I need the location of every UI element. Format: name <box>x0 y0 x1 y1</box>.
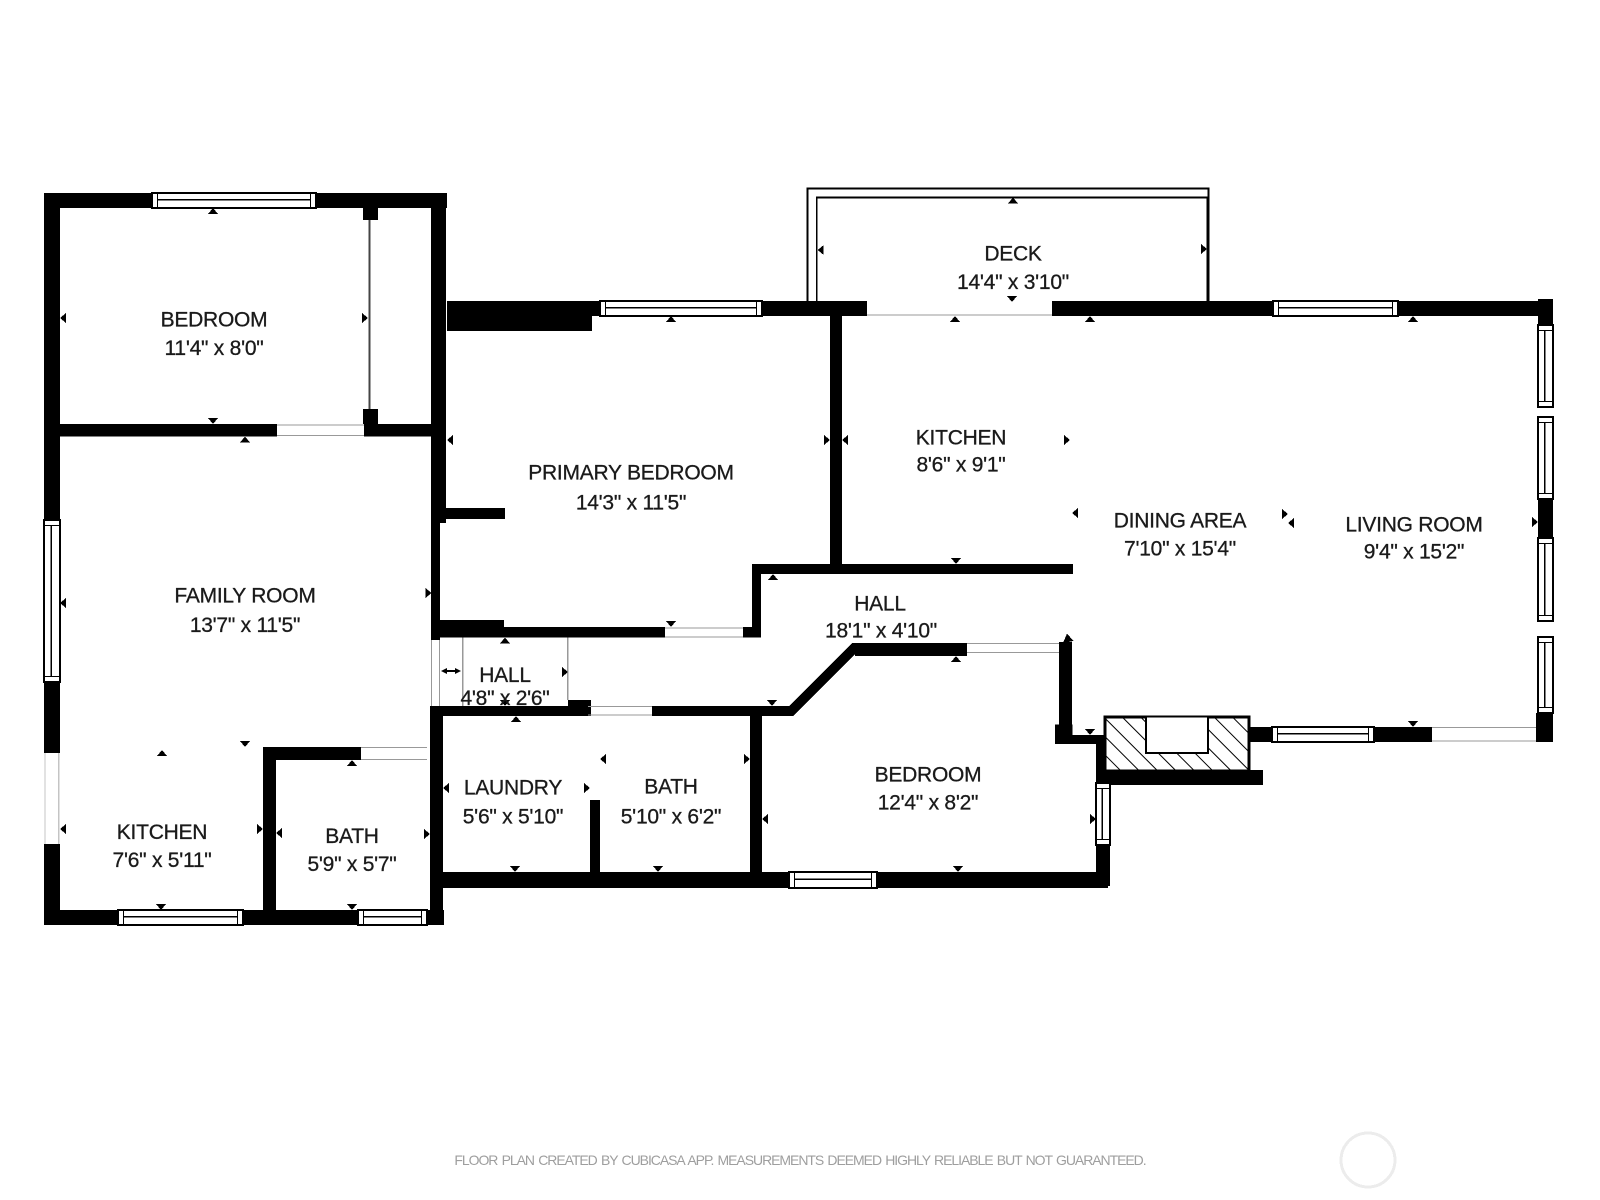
svg-text:FAMILY ROOM: FAMILY ROOM <box>174 585 315 608</box>
svg-text:4'8" x 2'6": 4'8" x 2'6" <box>460 687 549 710</box>
svg-text:KITCHEN: KITCHEN <box>117 821 207 844</box>
svg-text:5'9" x 5'7": 5'9" x 5'7" <box>307 853 396 876</box>
svg-text:14'4" x 3'10": 14'4" x 3'10" <box>957 271 1069 294</box>
svg-text:DINING AREA: DINING AREA <box>1114 510 1247 533</box>
svg-text:HALL: HALL <box>479 664 531 687</box>
svg-text:DECK: DECK <box>984 243 1042 266</box>
svg-text:HALL: HALL <box>854 593 906 616</box>
svg-text:12'4" x 8'2": 12'4" x 8'2" <box>878 792 979 815</box>
svg-text:FLOOR PLAN CREATED BY CUBICASA: FLOOR PLAN CREATED BY CUBICASA APP. MEAS… <box>454 1152 1145 1168</box>
svg-text:BEDROOM: BEDROOM <box>875 764 982 787</box>
svg-text:7'10" x 15'4": 7'10" x 15'4" <box>1124 538 1236 561</box>
svg-text:7'6" x 5'11": 7'6" x 5'11" <box>113 849 212 872</box>
svg-text:13'7" x 11'5": 13'7" x 11'5" <box>190 614 300 637</box>
svg-text:14'3" x 11'5": 14'3" x 11'5" <box>576 492 686 515</box>
svg-text:BEDROOM: BEDROOM <box>161 309 268 332</box>
svg-text:5'6" x 5'10": 5'6" x 5'10" <box>463 806 564 829</box>
svg-text:5'10" x 6'2": 5'10" x 6'2" <box>621 806 722 829</box>
svg-text:18'1" x 4'10": 18'1" x 4'10" <box>825 620 937 643</box>
svg-text:BATH: BATH <box>325 825 378 848</box>
svg-text:9'4" x 15'2": 9'4" x 15'2" <box>1364 541 1465 564</box>
svg-text:11'4" x 8'0": 11'4" x 8'0" <box>165 337 264 360</box>
svg-text:BATH: BATH <box>644 776 697 799</box>
svg-text:LIVING ROOM: LIVING ROOM <box>1345 514 1482 537</box>
svg-text:LAUNDRY: LAUNDRY <box>464 777 562 800</box>
svg-text:PRIMARY BEDROOM: PRIMARY BEDROOM <box>528 462 734 485</box>
svg-text:8'6" x 9'1": 8'6" x 9'1" <box>916 454 1005 477</box>
svg-text:KITCHEN: KITCHEN <box>916 427 1006 450</box>
